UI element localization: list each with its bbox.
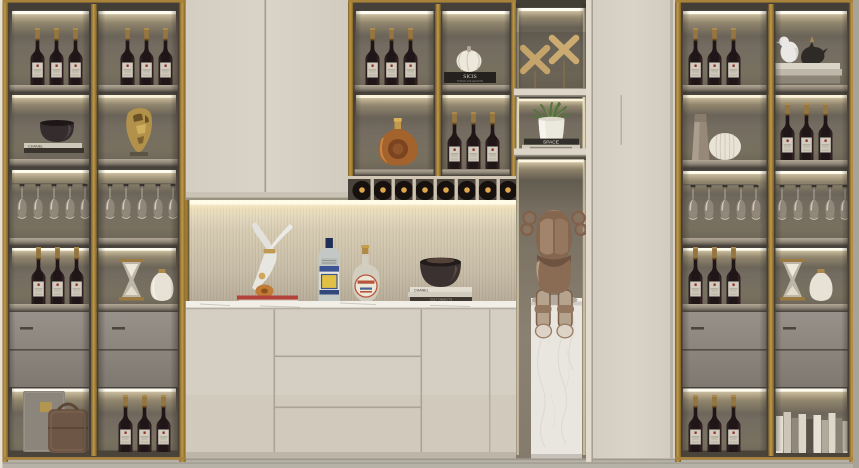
- svg-text:CHANEL: CHANEL: [414, 288, 429, 292]
- svg-text:SPACE: SPACE: [543, 140, 559, 146]
